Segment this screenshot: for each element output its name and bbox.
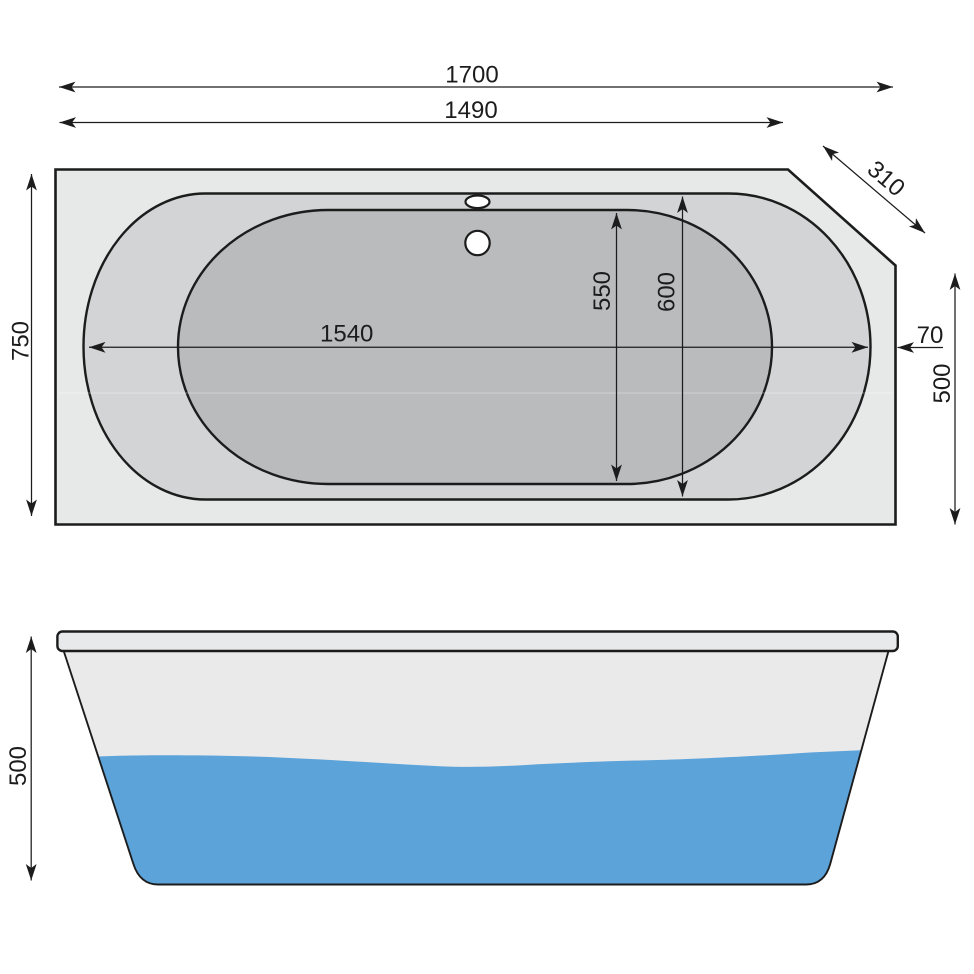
svg-text:1540: 1540: [320, 320, 373, 347]
svg-text:500: 500: [5, 746, 32, 786]
svg-text:1700: 1700: [445, 62, 498, 89]
svg-text:550: 550: [589, 271, 616, 311]
svg-text:70: 70: [917, 322, 944, 349]
svg-text:600: 600: [654, 272, 681, 312]
svg-text:1490: 1490: [444, 97, 497, 124]
svg-text:750: 750: [8, 321, 35, 361]
svg-text:500: 500: [929, 363, 956, 403]
